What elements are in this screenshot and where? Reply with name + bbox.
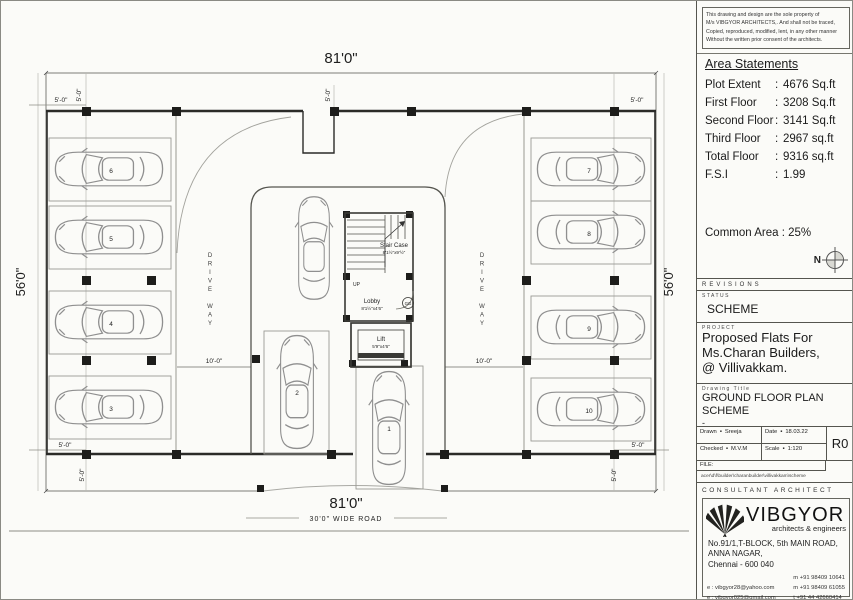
phone-line: t +91 44 42660414: [793, 594, 845, 600]
vibgyor-fan-logo-icon: [706, 501, 744, 537]
file-path: acer\d\f\builder\charanbuilder\villivakk…: [697, 471, 853, 483]
area-statements-title: Area Statements: [705, 57, 851, 71]
revision-number: R0: [826, 427, 853, 461]
project-line: @ Villivakkam.: [702, 361, 853, 376]
architect-address: No.91/1,T-BLOCK, 5th MAIN ROAD, ANNA NAG…: [706, 539, 846, 570]
area-value: 3141 Sq.ft: [783, 115, 835, 127]
phone-line: m +91 98409 10641: [793, 574, 845, 584]
area-label: Second Floor: [705, 115, 775, 127]
stair-label: Stair Case: [380, 243, 409, 249]
driveway-label-right: DRIVE WAY: [479, 253, 485, 330]
lobby-size: 8'1½"x4'6": [361, 305, 383, 311]
area-row: Plot Extent : 4676 Sq.ft: [705, 79, 851, 91]
stall-number: 10: [585, 408, 593, 415]
project-line: Ms.Charan Builders,: [702, 346, 853, 361]
area-value: 4676 Sq.ft: [783, 79, 835, 91]
north-indicator: N: [814, 247, 848, 273]
area-sep: :: [775, 133, 783, 145]
project-line: Proposed Flats For: [702, 331, 853, 346]
aisle-dim: 10'-0": [476, 358, 493, 365]
area-value: 1.99: [783, 169, 805, 181]
drawn-value: Sreeja: [725, 429, 742, 443]
dimension-lines: [29, 71, 669, 493]
area-label: Total Floor: [705, 151, 775, 163]
floor-plan-svg: 81'0" 81'0" 30'0" WIDE ROAD 56'0" 56'0" …: [1, 1, 696, 600]
brand-column: VIBGYOR architects & engineers: [744, 505, 846, 533]
stall-number: 7: [587, 168, 591, 175]
status-value: SCHEME: [702, 299, 853, 316]
area-value: 3208 Sq.ft: [783, 97, 835, 109]
address-line: ANNA NAGAR,: [708, 549, 846, 559]
file-label: FILE:: [697, 461, 826, 471]
address-line: No.91/1,T-BLOCK, 5th MAIN ROAD,: [708, 539, 846, 549]
setback-dim: 5'-0": [325, 88, 332, 102]
address-line: Chennai - 600 040: [708, 560, 846, 570]
area-label: Third Floor: [705, 133, 775, 145]
logo-row: VIBGYOR architects & engineers: [706, 501, 846, 537]
area-row: Third Floor : 2967 sq.ft: [705, 133, 851, 145]
north-label: N: [814, 255, 821, 266]
drawing-title-line: SCHEME: [702, 405, 853, 418]
dim-left: 56'0": [13, 267, 28, 296]
parking-stalls: [49, 138, 651, 489]
brand-name: VIBGYOR: [746, 505, 846, 525]
scale-cell: Scale ▪ 1:120: [762, 444, 827, 461]
stall-number: 3: [109, 406, 113, 413]
stall-number: 6: [109, 168, 113, 175]
road-label: 30'0" WIDE ROAD: [310, 516, 383, 523]
title-block-table: Drawn ▪ Sreeja Date ▪ 18.03.22 Checked ▪…: [697, 427, 853, 461]
stall-number: 8: [587, 231, 591, 238]
area-sep: :: [775, 97, 783, 109]
up-label: UP: [353, 282, 361, 288]
email-line: e : vibgyor025@gmail.com: [707, 594, 776, 600]
email-line: e : vibgyor28@yahoo.com: [707, 584, 776, 594]
setback-dim: 5'-0": [59, 442, 73, 449]
architectural-drawing-sheet: 81'0" 81'0" 30'0" WIDE ROAD 56'0" 56'0" …: [0, 0, 853, 600]
area-row: First Floor : 3208 Sq.ft: [705, 97, 851, 109]
drawn-cell: Drawn ▪ Sreeja: [697, 427, 762, 444]
copyright-line: This drawing and design are the sole pro…: [706, 11, 846, 19]
phone-list: m +91 98409 10641 m +91 98409 61055 t +9…: [793, 574, 845, 600]
door-tag: GG: [405, 301, 412, 306]
scale-value: 1:120: [788, 446, 803, 460]
area-sep: :: [775, 79, 783, 91]
plot-boundary: [46, 73, 656, 491]
drawing-title-line: GROUND FLOOR PLAN: [702, 392, 853, 405]
common-area-note: Common Area : 25%: [705, 227, 811, 239]
area-sep: :: [775, 169, 783, 181]
copyright-line: Without the written prior consent of the…: [706, 36, 846, 44]
scale-label: Scale: [765, 446, 780, 460]
area-row: Second Floor : 3141 Sq.ft: [705, 115, 851, 127]
lift-label: Lift: [377, 337, 385, 343]
area-label: F.S.I: [705, 169, 775, 181]
project-section: PROJECT Proposed Flats For Ms.Charan Bui…: [697, 323, 853, 384]
drawn-label: Drawn: [700, 429, 717, 443]
setback-dim: 5'-0": [55, 97, 69, 104]
dim-right: 56'0": [661, 267, 676, 296]
north-arrow-icon: [822, 247, 848, 273]
dim-bottom: 81'0": [329, 495, 362, 512]
dim-top: 81'0": [324, 50, 357, 67]
phone-line: m +91 98409 61055: [793, 584, 845, 594]
consultant-header: CONSULTANT ARCHITECT: [697, 483, 853, 497]
area-value: 9316 sq.ft: [783, 151, 834, 163]
bullet-icon: ▪: [783, 446, 785, 460]
revisions-header: REVISIONS: [697, 278, 853, 291]
date-value: 18.03.22: [785, 429, 808, 443]
stall-number: 4: [109, 321, 113, 328]
area-label: First Floor: [705, 97, 775, 109]
area-value: 2967 sq.ft: [783, 133, 834, 145]
copyright-line: Copied, reproduced, modified, lent, in a…: [706, 28, 846, 36]
stall-number: 1: [387, 426, 391, 433]
title-block-panel: This drawing and design are the sole pro…: [696, 1, 853, 600]
area-sep: :: [775, 115, 783, 127]
status-section: STATUS SCHEME: [697, 291, 853, 323]
core-block: [176, 111, 524, 454]
checked-cell: Checked ▪ M.V.M: [697, 444, 762, 461]
architect-logo-block: VIBGYOR architects & engineers No.91/1,T…: [702, 498, 850, 597]
driveway-label-left: DRIVE WAY: [207, 253, 213, 330]
bullet-icon: ▪: [726, 446, 728, 460]
setback-dim: 5'-0": [79, 468, 86, 482]
checked-value: M.V.M: [731, 446, 747, 460]
aisle-dim: 10'-0": [206, 358, 223, 365]
bullet-icon: ▪: [720, 429, 722, 443]
setback-dim: 5'-0": [76, 88, 83, 102]
building-walls: [46, 111, 656, 454]
setback-dim: 5'-0": [611, 468, 618, 482]
date-cell: Date ▪ 18.03.22: [762, 427, 827, 444]
area-row: F.S.I : 1.99: [705, 169, 851, 181]
area-label: Plot Extent: [705, 79, 775, 91]
drawing-title-section: Drawing Title GROUND FLOOR PLAN SCHEME -: [697, 384, 853, 427]
area-row: Total Floor : 9316 sq.ft: [705, 151, 851, 163]
area-sep: :: [775, 151, 783, 163]
date-label: Date: [765, 429, 777, 443]
copyright-line: M/s VIBGYOR ARCHITECTS,. And shall not b…: [706, 19, 846, 27]
contact-row: e : vibgyor28@yahoo.com e : vibgyor025@g…: [706, 574, 846, 600]
email-list: e : vibgyor28@yahoo.com e : vibgyor025@g…: [707, 584, 776, 600]
lift-size: 5'9"x4'6": [372, 344, 390, 349]
stall-number: 5: [109, 236, 113, 243]
stall-number: 2: [295, 390, 299, 397]
copyright-note: This drawing and design are the sole pro…: [702, 7, 850, 49]
area-statements: Area Statements Plot Extent : 4676 Sq.ft…: [705, 55, 851, 187]
stall-number: 9: [587, 326, 591, 333]
checked-label: Checked: [700, 446, 723, 460]
lobby-label: Lobby: [364, 299, 380, 305]
setback-dim: 5'-0": [631, 97, 645, 104]
divider: [697, 53, 853, 54]
setback-dim: 5'-0": [632, 442, 646, 449]
floor-plan-area: 81'0" 81'0" 30'0" WIDE ROAD 56'0" 56'0" …: [1, 1, 696, 600]
bullet-icon: ▪: [780, 429, 782, 443]
stair-size: 8'1½"x9'½": [383, 249, 406, 255]
